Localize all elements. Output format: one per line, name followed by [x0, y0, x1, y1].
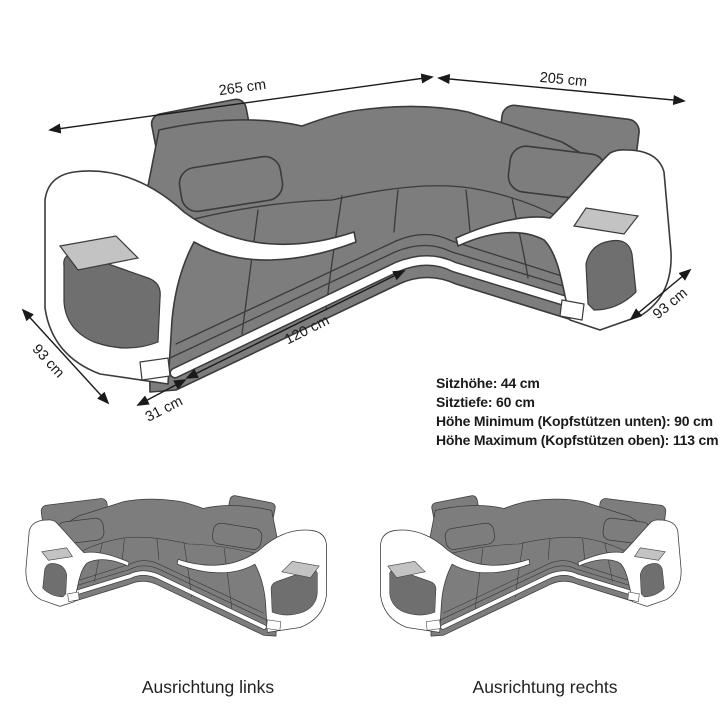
dimension-label-31: 31 cm	[143, 393, 185, 425]
spec-seat-height: Sitzhöhe: 44 cm	[436, 374, 720, 393]
main-sofa-illustration	[45, 98, 671, 392]
spec-height-max: Höhe Maximum (Kopfstützen oben): 113 cm	[436, 431, 720, 450]
spec-text-block: Sitzhöhe: 44 cm Sitztiefe: 60 cm Höhe Mi…	[436, 374, 720, 450]
spec-height-min: Höhe Minimum (Kopfstützen unten): 90 cm	[436, 412, 720, 431]
sofa-dimension-diagram: 265 cm 205 cm 93 cm 120 cm 31 cm 93 cm S…	[0, 0, 720, 720]
dimension-label-205: 205 cm	[539, 70, 588, 90]
variant-left-illustration	[26, 495, 327, 636]
spec-seat-depth: Sitztiefe: 60 cm	[436, 393, 720, 412]
dimension-label-265: 265 cm	[218, 77, 267, 99]
variant-label-rechts: Ausrichtung rechts	[473, 677, 618, 698]
variant-label-links: Ausrichtung links	[142, 677, 274, 698]
diagram-canvas: 265 cm 205 cm 93 cm 120 cm 31 cm 93 cm	[0, 0, 720, 720]
variant-right-illustration	[381, 495, 682, 636]
dimension-205: 205 cm	[439, 70, 684, 101]
